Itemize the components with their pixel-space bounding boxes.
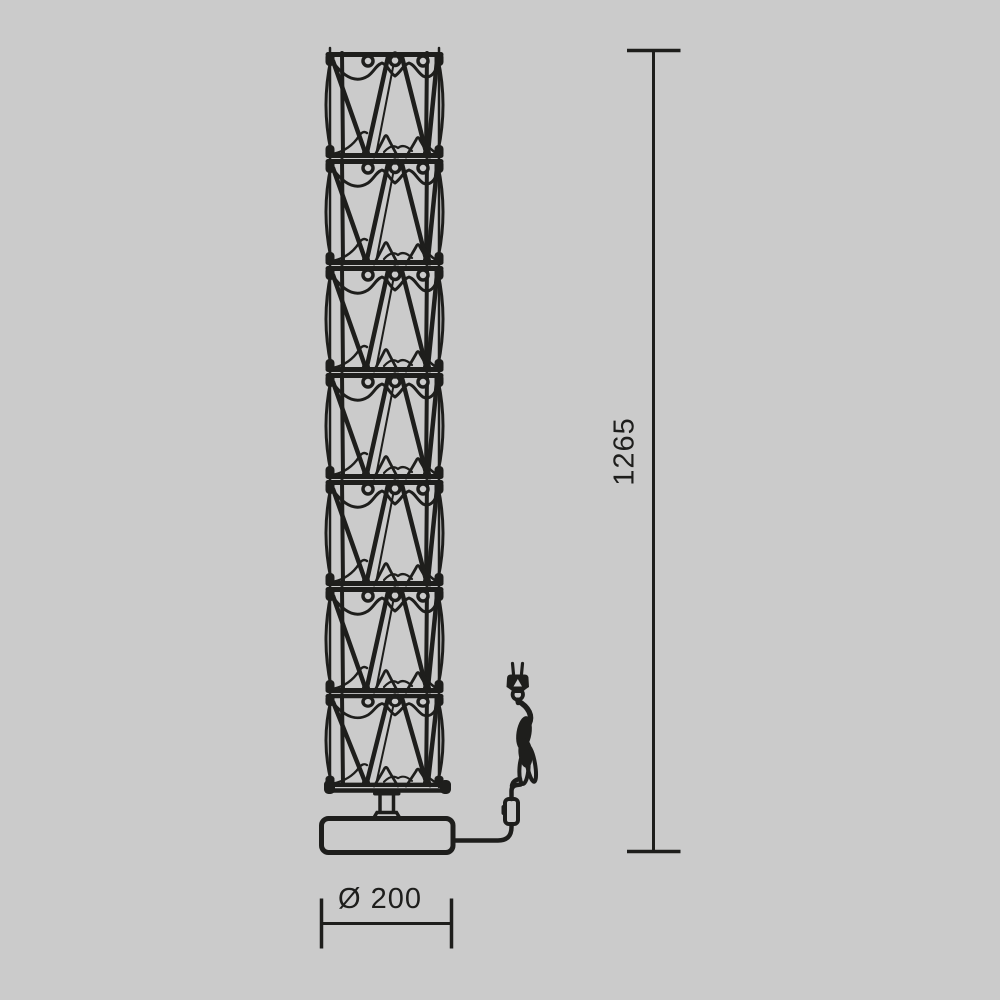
lamp-column (326, 48, 444, 787)
lamp-module (326, 583, 444, 693)
floor-lamp-drawing: 1265 Ø 200 (0, 0, 1000, 1000)
power-cord (454, 824, 512, 841)
height-dimension: 1265 (609, 51, 681, 852)
dimension-drawing: 1265 Ø 200 (0, 0, 1000, 1000)
diameter-dimension-label: Ø 200 (338, 883, 422, 915)
base-diameter-dimension: Ø 200 (322, 883, 452, 949)
lamp-module (326, 48, 444, 158)
power-plug (507, 664, 530, 704)
cord-coil (512, 701, 538, 786)
lamp-base (322, 819, 454, 853)
lamp-module (326, 262, 444, 372)
lamp-module (326, 155, 444, 265)
height-dimension-label: 1265 (609, 417, 641, 486)
power-switch (502, 785, 521, 825)
lamp-module (326, 369, 444, 479)
lamp-module (326, 690, 444, 787)
lamp-stem (374, 794, 400, 818)
lamp-module (326, 476, 444, 586)
